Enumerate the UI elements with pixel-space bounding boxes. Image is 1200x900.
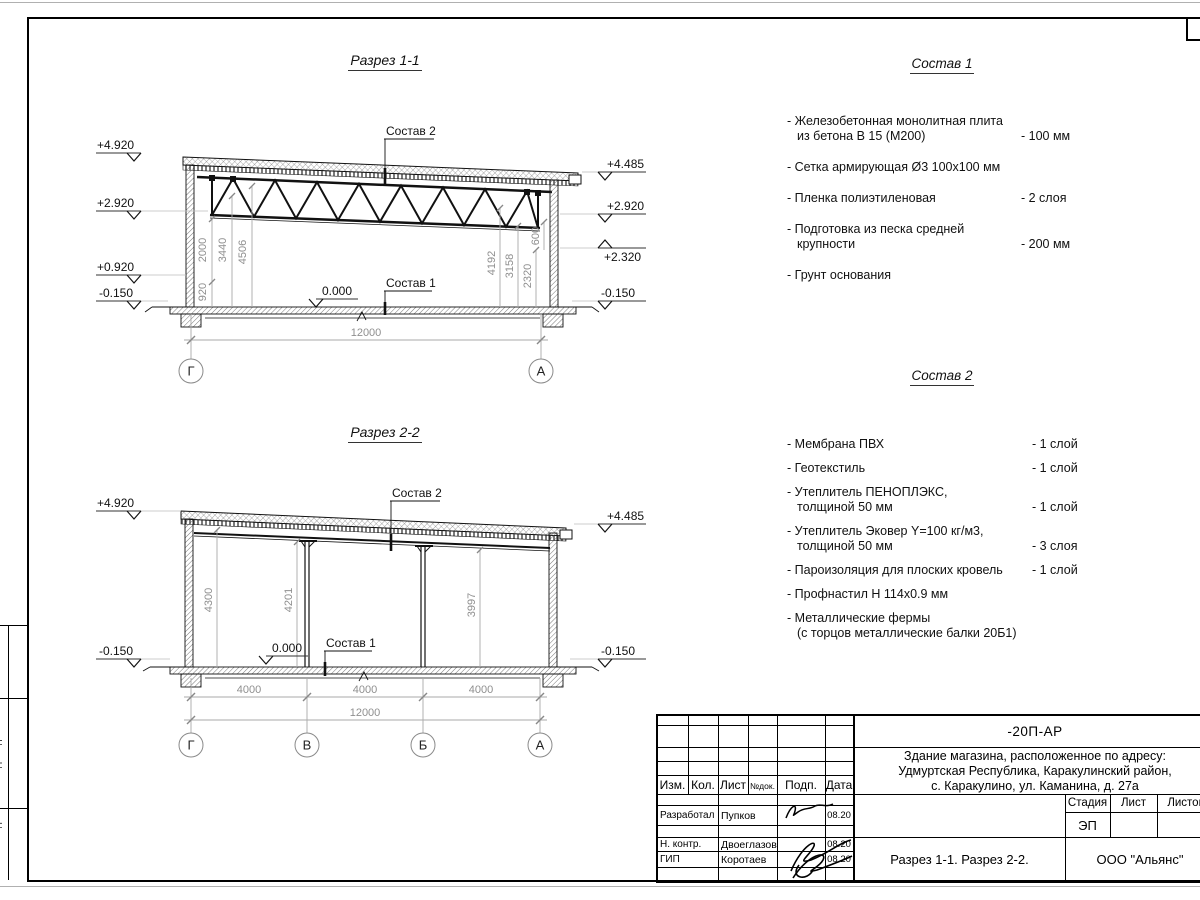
roof-slab — [183, 157, 581, 186]
item-text: - Железобетонная монолитная плита — [787, 114, 1117, 129]
tb-line — [657, 747, 1200, 748]
sheets-label: Листов — [1157, 797, 1200, 809]
signature — [783, 835, 858, 883]
dim-label: 3440 — [217, 238, 229, 262]
item-value: - 100 мм — [1021, 129, 1070, 144]
dim-label: 4300 — [203, 588, 215, 612]
sostav2-heading: Состав 2 — [842, 368, 1042, 383]
item-value: - 3 слоя — [1032, 539, 1077, 554]
floor-slab — [145, 307, 599, 327]
tb-line — [657, 837, 1200, 838]
roof-slab — [181, 511, 572, 551]
list-item: - Мембрана ПВХ - 1 слой — [787, 437, 1127, 452]
elev-mark: -0.150 — [99, 644, 133, 658]
sostav1-callout: Состав 1 — [386, 276, 436, 290]
dim-label: 3158 — [504, 254, 516, 278]
tb-role: Н. контр. — [660, 839, 718, 850]
tb-col-data: Дата — [825, 778, 853, 792]
axis-bubble-label: А — [536, 738, 545, 753]
list-item: - Сетка армирующая Ø3 100х100 мм — [787, 160, 1117, 175]
dim-label: 4506 — [237, 240, 249, 264]
side-strip-label: Взам. инв. № — [0, 635, 8, 687]
elev-mark: +4.485 — [607, 157, 644, 171]
elev-mark: +4.920 — [97, 496, 134, 510]
item-value: - 1 слой — [1032, 500, 1078, 515]
tb-line — [657, 794, 1200, 795]
sostav1-list: - Железобетонная монолитная плита из бет… — [787, 114, 1117, 299]
item-text: - Сетка армирующая Ø3 100х100 мм — [787, 160, 1117, 175]
walls — [186, 165, 558, 307]
list-item: - Пленка полиэтиленовая - 2 слоя — [787, 191, 1117, 206]
item-text: - Утеплитель Эковер Y=100 кг/м3, — [787, 524, 1127, 539]
section2-title: Разрез 2-2 — [285, 424, 485, 440]
bottom-dimension: 12000 Г А — [179, 313, 553, 383]
elev-mark: +0.920 — [97, 260, 134, 274]
list-item: - Грунт основания — [787, 268, 1117, 283]
callouts: Состав 2 Состав 1 0.000 — [259, 486, 442, 676]
truss — [197, 175, 552, 231]
item-text: (с торцов металлические балки 20Б1) — [787, 626, 1127, 641]
tb-line — [718, 715, 719, 881]
tb-line — [1065, 812, 1200, 813]
item-text: - Грунт основания — [787, 268, 1117, 283]
dim-total: 12000 — [350, 707, 381, 719]
project-address-3: с. Каракулино, ул. Каманина, д. 27а — [855, 779, 1200, 794]
doc-number: -20П-АР — [855, 724, 1200, 739]
elev-mark: -0.150 — [601, 644, 635, 658]
list-item: - Пароизоляция для плоских кровель - 1 с… — [787, 563, 1127, 578]
stage-value: ЭП — [1065, 818, 1110, 833]
elev-mark: -0.150 — [99, 286, 133, 300]
sostav1-callout: Состав 1 — [326, 636, 376, 650]
section1-title: Разрез 1-1 — [285, 52, 485, 68]
sheet-label: Лист — [1110, 797, 1157, 809]
item-value: - 2 слоя — [1021, 191, 1066, 206]
side-strip-label: Подп. и дата — [0, 727, 8, 779]
elev-mark: +2.920 — [97, 196, 134, 210]
elev-mark: -0.150 — [601, 286, 635, 300]
elev-mark: +2.320 — [604, 250, 641, 264]
zero-level: 0.000 — [322, 284, 352, 298]
dim-label: 920 — [197, 283, 209, 301]
corner-stamp-box — [1186, 17, 1200, 41]
side-strip-divider — [0, 808, 27, 809]
axis-bubble-label: В — [303, 738, 312, 753]
tb-name: Двоеглазов — [721, 839, 777, 851]
drawing-sheet: Взам. инв. № Подп. и дата Инв. № подл. Р… — [0, 0, 1200, 900]
project-address-1: Здание магазина, расположенное по адресу… — [855, 749, 1200, 764]
sostav2-list: - Мембрана ПВХ - 1 слой - Геотекстиль - … — [787, 437, 1127, 650]
list-item: - Утеплитель Эковер Y=100 кг/м3, толщино… — [787, 524, 1127, 554]
tb-name: Пупков — [721, 810, 777, 822]
sostav1-heading: Состав 1 — [842, 56, 1042, 71]
dim-label: 4000 — [353, 684, 377, 696]
side-strip-divider — [0, 625, 27, 626]
item-text: - Пленка полиэтиленовая — [787, 191, 1117, 206]
axis-bubble-label: Б — [419, 738, 428, 753]
drawing-title: Разрез 1-1. Разрез 2-2. — [854, 852, 1065, 867]
signature — [782, 798, 837, 823]
side-strip-divider — [0, 698, 27, 699]
dim-label: 2320 — [522, 264, 534, 288]
tb-name: Коротаев — [721, 854, 777, 866]
tb-col-izm: Изм. — [657, 778, 688, 792]
elev-mark: +4.920 — [97, 138, 134, 152]
side-strip-label: Инв. № подл. — [0, 819, 8, 871]
section1-drawing: +4.920 +2.920 +0.920 -0.150 +4.485 +2.92… — [85, 118, 675, 388]
tb-line — [657, 775, 854, 776]
item-text: - Металлические фермы — [787, 611, 1127, 626]
list-item: - Металлические фермы (с торцов металлич… — [787, 611, 1127, 641]
list-item: - Утеплитель ПЕНОПЛЭКС, толщиной 50 мм -… — [787, 485, 1127, 515]
elevation-marks-left: +4.920 -0.150 — [96, 496, 181, 667]
dim-label: 4000 — [237, 684, 261, 696]
tb-role: Разработал — [660, 810, 718, 821]
tb-line — [657, 725, 854, 726]
dim-label: 4192 — [486, 251, 498, 275]
sostav2-callout: Состав 2 — [386, 124, 436, 138]
sheet-bottom-edge — [0, 886, 1200, 887]
tb-col-kol: Кол. — [688, 778, 718, 792]
dim-label: 4201 — [283, 588, 295, 612]
tb-line — [777, 715, 778, 881]
item-value: - 1 слой — [1032, 461, 1078, 476]
elev-mark: +2.920 — [607, 199, 644, 213]
item-text: - Утеплитель ПЕНОПЛЭКС, — [787, 485, 1127, 500]
project-address-2: Удмуртская Республика, Каракулинский рай… — [855, 764, 1200, 779]
elev-mark: +4.485 — [607, 509, 644, 523]
axis-bubble-label: Г — [187, 738, 194, 753]
list-item: - Железобетонная монолитная плита из бет… — [787, 114, 1117, 144]
sostav2-callout: Состав 2 — [392, 486, 442, 500]
item-value: - 1 слой — [1032, 563, 1078, 578]
tb-col-ndok: №док. — [748, 781, 777, 791]
tb-role: ГИП — [660, 854, 718, 865]
dim-total: 12000 — [351, 327, 382, 339]
axis-bubble-label: А — [537, 364, 546, 379]
side-strip-line — [8, 625, 9, 880]
item-text: - Профнастил Н 114х0.9 мм — [787, 587, 1127, 602]
tb-line — [657, 761, 854, 762]
dim-label: 3997 — [466, 593, 478, 617]
dim-label: 600 — [530, 227, 542, 245]
list-item: - Профнастил Н 114х0.9 мм — [787, 587, 1127, 602]
list-item: - Геотекстиль - 1 слой — [787, 461, 1127, 476]
elevation-marks-right: +4.485 -0.150 — [570, 509, 646, 667]
axis-bubble-label: Г — [187, 364, 194, 379]
tb-line — [657, 825, 854, 826]
item-value: - 200 мм — [1021, 237, 1070, 252]
tb-col-list: Лист — [718, 778, 748, 792]
zero-level: 0.000 — [272, 641, 302, 655]
dim-label: 4000 — [469, 684, 493, 696]
item-value: - 1 слой — [1032, 437, 1078, 452]
dim-label: 2000 — [197, 238, 209, 262]
company-name: ООО "Альянс" — [1065, 852, 1200, 867]
bottom-dimension: 4000 4000 4000 12000 Г В Б А — [179, 678, 552, 757]
section2-drawing: +4.920 -0.150 +4.485 -0.150 4300 4201 — [85, 480, 675, 780]
item-text: - Подготовка из песка средней — [787, 222, 1117, 237]
tb-col-podp: Подп. — [777, 778, 825, 792]
sheet-top-edge — [0, 2, 1200, 3]
stage-label: Стадия — [1065, 797, 1110, 809]
list-item: - Подготовка из песка средней крупности … — [787, 222, 1117, 252]
